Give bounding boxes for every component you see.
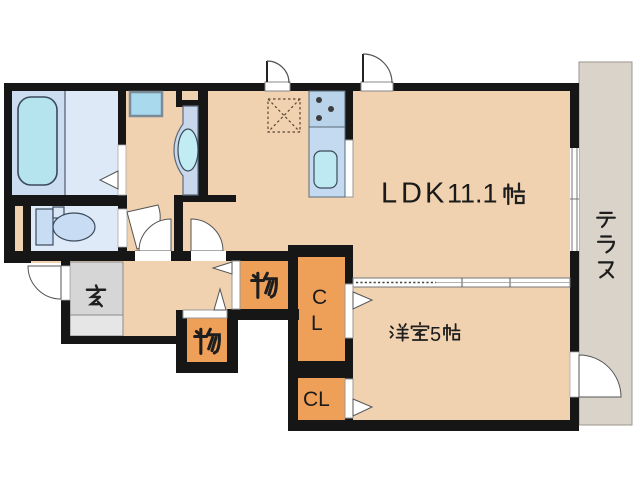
svg-text:CL: CL (303, 388, 330, 411)
svg-text:L: L (311, 312, 323, 335)
svg-text:LDK: LDK (381, 178, 445, 210)
svg-text:C: C (312, 286, 327, 309)
svg-text:11.1: 11.1 (447, 179, 498, 209)
svg-text:5: 5 (430, 324, 441, 346)
